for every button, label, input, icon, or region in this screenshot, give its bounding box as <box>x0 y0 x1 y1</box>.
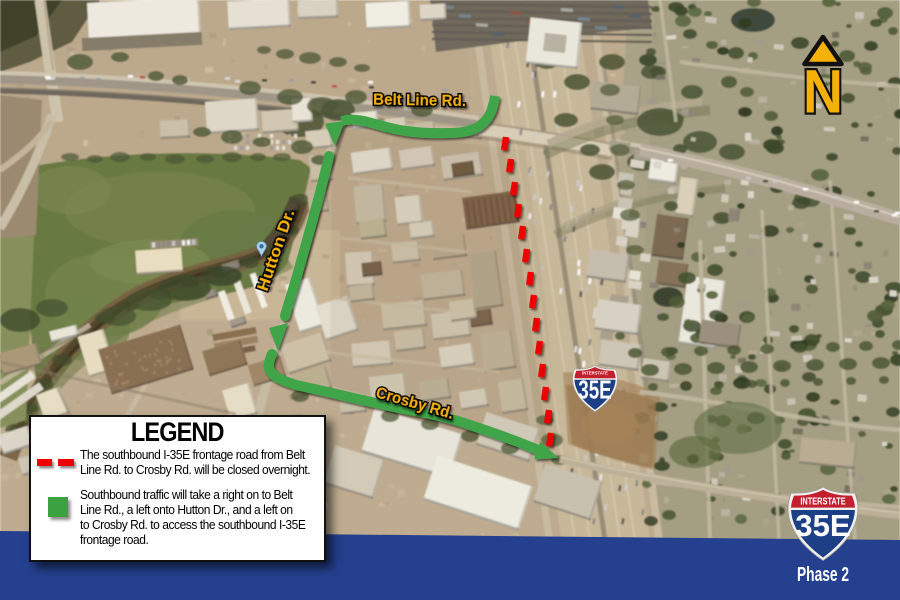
svg-text:INTERSTATE: INTERSTATE <box>800 497 846 508</box>
svg-text:35E: 35E <box>578 375 611 404</box>
svg-text:35E: 35E <box>795 509 850 543</box>
svg-text:Phase 2: Phase 2 <box>797 564 849 586</box>
svg-text:N: N <box>803 58 843 126</box>
